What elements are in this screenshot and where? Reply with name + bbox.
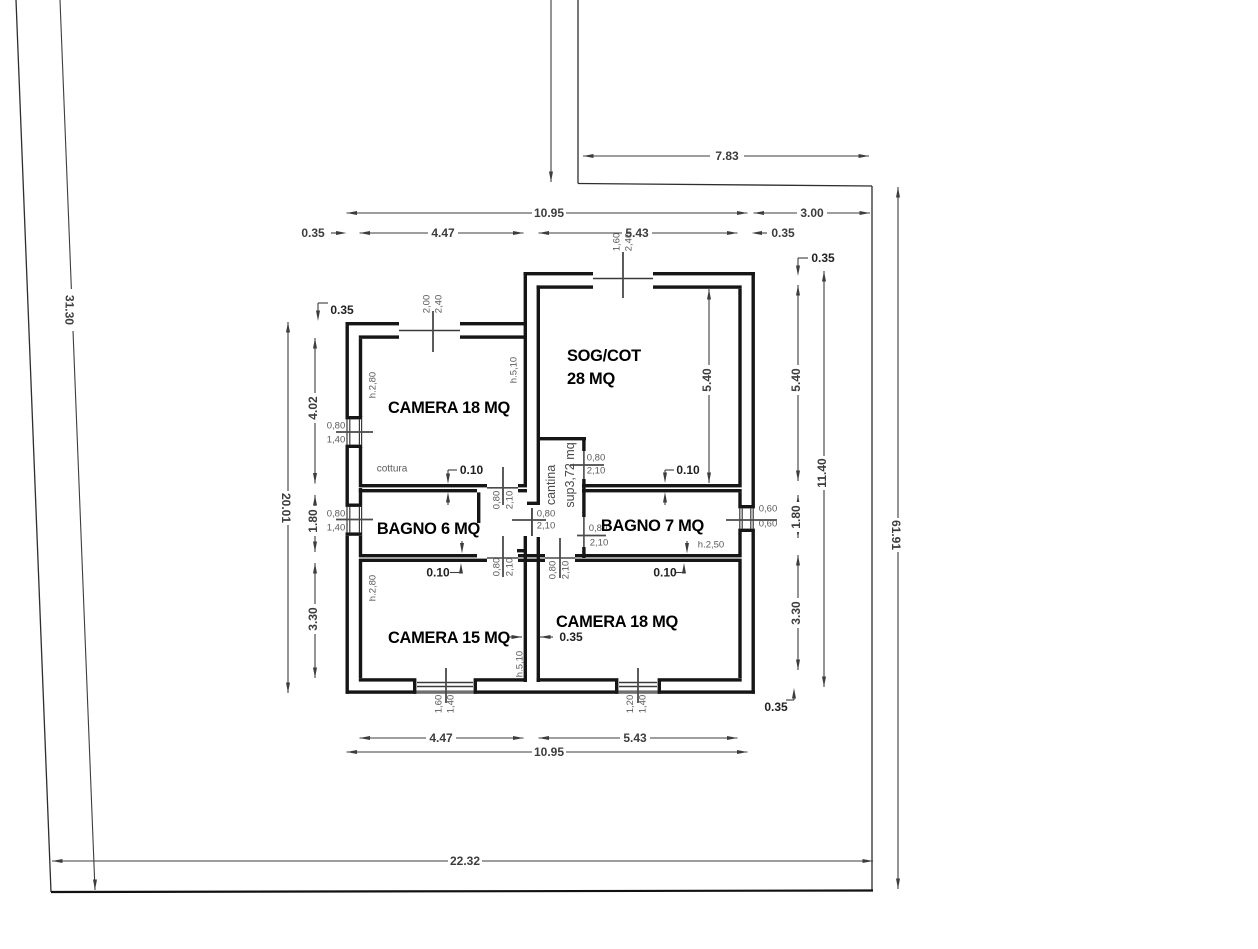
svg-text:0.35: 0.35 [811, 251, 835, 265]
svg-text:SOG/COT: SOG/COT [567, 347, 641, 365]
svg-text:1.80: 1.80 [306, 509, 320, 533]
svg-text:0,60: 0,60 [759, 519, 778, 530]
svg-text:4.47: 4.47 [429, 731, 453, 745]
svg-text:1,60: 1,60 [434, 695, 445, 714]
svg-text:1,40: 1,40 [327, 523, 346, 534]
svg-text:1,60: 1,60 [612, 233, 623, 252]
svg-text:11.40: 11.40 [815, 458, 829, 488]
svg-text:cottura: cottura [377, 464, 408, 475]
svg-text:31.30: 31.30 [62, 295, 77, 326]
svg-text:2,40: 2,40 [434, 295, 445, 314]
svg-text:2,10: 2,10 [561, 561, 572, 580]
svg-text:CAMERA 18 MQ: CAMERA 18 MQ [388, 399, 511, 417]
svg-text:2,40: 2,40 [624, 233, 635, 252]
svg-text:10.95: 10.95 [534, 206, 564, 220]
svg-text:CAMERA 18 MQ: CAMERA 18 MQ [556, 613, 679, 631]
svg-text:0.35: 0.35 [559, 630, 583, 644]
svg-text:2,00: 2,00 [422, 295, 433, 314]
svg-text:0,80: 0,80 [492, 558, 503, 577]
svg-text:1.80: 1.80 [789, 505, 803, 529]
svg-text:0,80: 0,80 [327, 509, 346, 520]
svg-text:0.10: 0.10 [426, 566, 450, 580]
svg-text:h.2,80: h.2,80 [368, 575, 379, 601]
svg-text:61.91: 61.91 [889, 520, 903, 550]
svg-text:0,80: 0,80 [537, 509, 556, 520]
svg-text:0,80: 0,80 [327, 421, 346, 432]
svg-text:1,20: 1,20 [625, 695, 636, 714]
svg-text:0.10: 0.10 [460, 463, 484, 477]
svg-text:28 MQ: 28 MQ [567, 370, 615, 388]
svg-text:0,60: 0,60 [759, 504, 778, 515]
svg-text:2,10: 2,10 [537, 521, 556, 532]
svg-text:h.5,10: h.5,10 [515, 651, 526, 677]
svg-text:3.30: 3.30 [789, 601, 803, 625]
svg-text:h.2,80: h.2,80 [368, 372, 379, 398]
svg-text:2,10: 2,10 [590, 538, 609, 549]
svg-text:0.10: 0.10 [653, 566, 677, 580]
svg-text:22.32: 22.32 [450, 854, 480, 868]
svg-text:7.83: 7.83 [715, 149, 739, 163]
svg-text:0.10: 0.10 [676, 463, 700, 477]
svg-text:2,10: 2,10 [587, 466, 606, 477]
svg-text:5.40: 5.40 [789, 368, 803, 392]
svg-text:10.95: 10.95 [534, 745, 564, 759]
svg-text:3.00: 3.00 [800, 206, 824, 220]
svg-text:cantina: cantina [544, 465, 558, 505]
svg-text:4.47: 4.47 [431, 226, 455, 240]
svg-text:2,10: 2,10 [505, 558, 516, 577]
svg-text:4.02: 4.02 [306, 396, 320, 420]
svg-text:5.40: 5.40 [700, 368, 714, 392]
svg-text:1,40: 1,40 [638, 695, 649, 714]
svg-text:1,40: 1,40 [327, 435, 346, 446]
svg-text:h.5,10: h.5,10 [509, 357, 520, 383]
svg-text:5.43: 5.43 [623, 731, 647, 745]
svg-text:0,80: 0,80 [587, 453, 606, 464]
svg-text:0.35: 0.35 [771, 226, 795, 240]
svg-text:0,80: 0,80 [492, 491, 503, 510]
svg-text:2,10: 2,10 [505, 491, 516, 510]
svg-text:sup3,72 mq: sup3,72 mq [563, 442, 577, 507]
svg-text:0,80: 0,80 [548, 561, 559, 580]
svg-text:0.35: 0.35 [330, 303, 354, 317]
svg-text:h.2,50: h.2,50 [698, 540, 724, 551]
svg-text:3.30: 3.30 [306, 607, 320, 631]
svg-text:20.01: 20.01 [279, 493, 293, 523]
svg-text:BAGNO 7 MQ: BAGNO 7 MQ [601, 517, 705, 535]
svg-text:0.35: 0.35 [301, 226, 325, 240]
svg-text:1,40: 1,40 [446, 695, 457, 714]
svg-text:0.35: 0.35 [764, 700, 788, 714]
svg-text:BAGNO 6 MQ: BAGNO 6 MQ [377, 520, 481, 538]
svg-text:CAMERA 15 MQ: CAMERA 15 MQ [388, 629, 511, 647]
